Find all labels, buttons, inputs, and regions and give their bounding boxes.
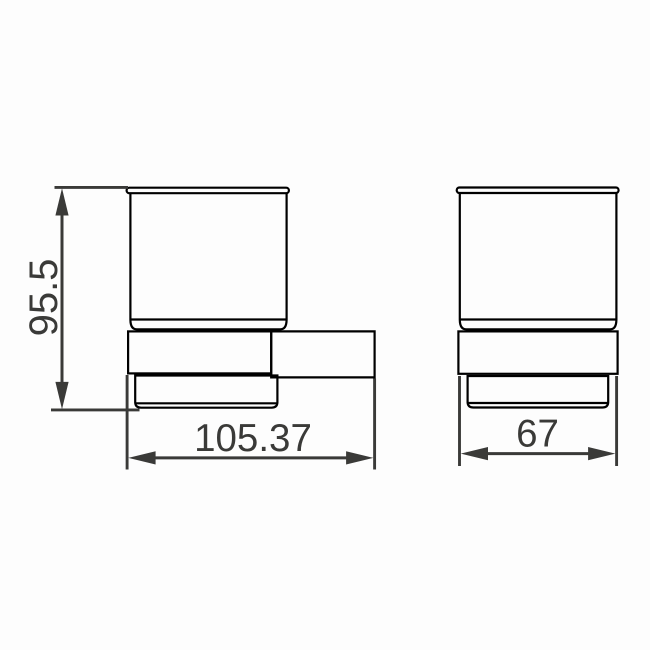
svg-text:95.5: 95.5 — [22, 259, 66, 337]
svg-text:105.37: 105.37 — [194, 417, 312, 460]
svg-text:67: 67 — [516, 413, 559, 456]
